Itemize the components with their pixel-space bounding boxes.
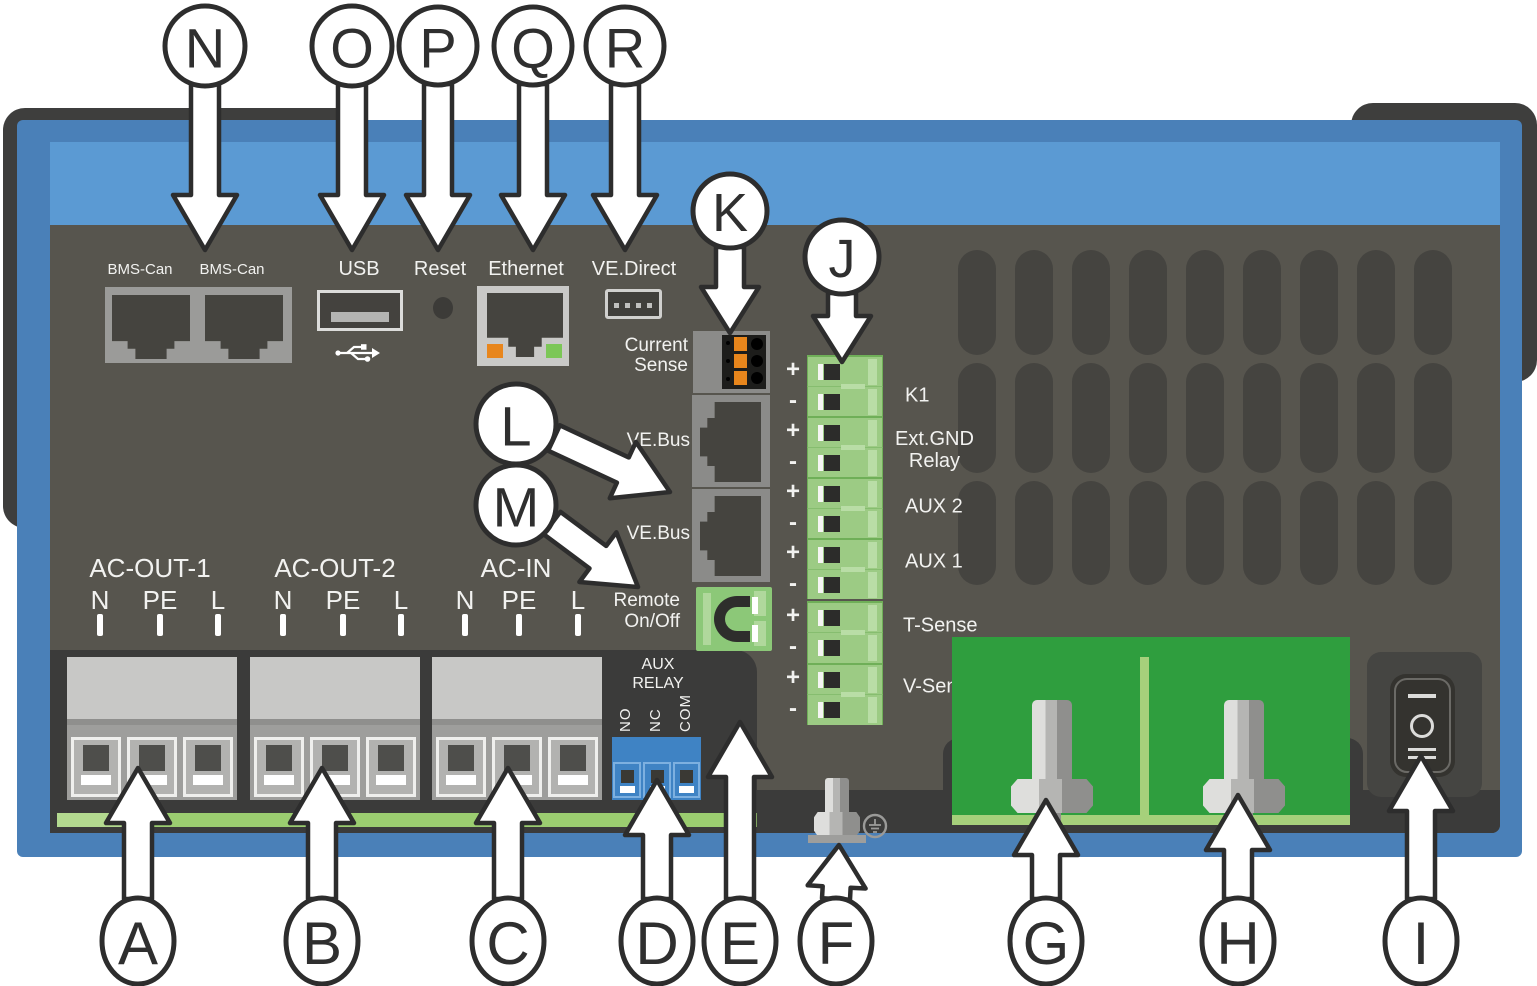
decor — [868, 572, 877, 598]
vent-slot-r2c9 — [1414, 363, 1452, 473]
pcb-divider — [1140, 657, 1149, 825]
pin-tick — [575, 614, 581, 636]
label-t-sense: T-Sense — [903, 615, 977, 638]
ac-terminal-screw — [127, 737, 177, 797]
ground-bolt-nut — [814, 812, 860, 836]
vent-slot-r2c3 — [1072, 363, 1110, 473]
decor — [824, 394, 840, 410]
vent-slot-r1c2 — [1015, 250, 1053, 355]
ethernet-led-orange — [487, 344, 503, 358]
battery-bolt-minus-stub — [1235, 813, 1253, 825]
callout-circle-O — [312, 6, 392, 86]
ac-terminal-screw — [492, 737, 542, 797]
callout-letter-D: D — [635, 910, 678, 977]
vent-slot-r2c2 — [1015, 363, 1053, 473]
vent-slot-r1c8 — [1357, 250, 1395, 355]
vedirect-port — [605, 289, 662, 319]
pin-tick — [398, 614, 404, 636]
decor — [824, 640, 840, 656]
ac-pin-AC-IN-L: L — [571, 585, 585, 616]
pin-tick — [215, 614, 221, 636]
ac-terminal-screw — [548, 737, 598, 797]
sign-minus: - — [783, 635, 803, 659]
j-terminal-cell — [807, 538, 883, 569]
sign-plus: + — [783, 604, 803, 628]
callout-circle-I — [1385, 898, 1457, 984]
vent-slot-r1c4 — [1129, 250, 1167, 355]
connection-diagram: BMS-Can BMS-Can USB Reset Ethernet VE.Di… — [0, 0, 1537, 986]
decor — [868, 542, 877, 568]
decor — [446, 775, 476, 785]
decor — [818, 394, 823, 410]
j-terminal-cell — [807, 663, 883, 694]
ac-terminal-block-AC-OUT-1 — [67, 657, 237, 800]
decor — [432, 719, 602, 725]
callout-circle-F — [800, 898, 872, 984]
ac-terminal-screw — [71, 737, 121, 797]
label-k1: K1 — [905, 385, 929, 408]
j-terminal-cell — [807, 447, 883, 478]
decor — [868, 667, 877, 693]
ac-pin-AC-IN-N: N — [456, 585, 475, 616]
ground-bolt-base — [808, 835, 866, 843]
sign-plus: + — [783, 419, 803, 443]
callout-circle-D — [621, 898, 693, 984]
vent-slot-r2c7 — [1300, 363, 1338, 473]
j-terminal-cell — [807, 694, 883, 725]
decor — [868, 450, 877, 476]
pin-tick — [280, 614, 286, 636]
decor — [824, 486, 840, 502]
power-switch — [1390, 674, 1455, 777]
callout-letter-H: H — [1216, 910, 1259, 977]
vent-slot-r2c4 — [1129, 363, 1167, 473]
j-terminal-cell — [807, 416, 883, 447]
decor — [818, 425, 823, 441]
decor — [818, 516, 823, 532]
vent-slot-r1c6 — [1243, 250, 1281, 355]
decor — [824, 516, 840, 532]
callout-letter-G: G — [1023, 910, 1070, 977]
battery-bolt-minus-shaft — [1224, 700, 1264, 792]
ethernet-label: Ethernet — [488, 258, 564, 281]
battery-bolt-minus-nut — [1203, 779, 1285, 813]
ac-in-label: AC-IN — [481, 553, 552, 584]
callout-circle-A — [102, 898, 174, 984]
vent-slot-r3c6 — [1243, 481, 1281, 585]
decor — [322, 745, 348, 771]
vebus-2-label: VE.Bus — [627, 523, 690, 545]
ac-terminal-screw — [310, 737, 360, 797]
callout-letter-P: P — [419, 17, 456, 80]
pin-tick — [157, 614, 163, 636]
decor — [841, 384, 865, 389]
j-terminal-cell — [807, 601, 883, 632]
ac-pin-AC-IN-PE: PE — [502, 585, 537, 616]
callout-circle-R — [586, 7, 664, 85]
decor — [824, 577, 840, 593]
callout-circle-B — [286, 898, 358, 984]
callout-letter-C: C — [486, 910, 529, 977]
ethernet-led-green — [546, 344, 562, 358]
switch-mark-charger2 — [1408, 756, 1436, 759]
decor — [818, 640, 823, 656]
ac-terminal-screw — [436, 737, 486, 797]
decor — [824, 364, 840, 380]
current-sense-label: Current Sense — [625, 336, 688, 376]
label-ext-gnd-relay: Ext.GND Relay — [895, 428, 974, 472]
callout-letter-B: B — [302, 910, 342, 977]
callout-letter-Q: Q — [511, 17, 555, 80]
callout-circle-E — [704, 898, 776, 984]
decor — [818, 547, 823, 563]
ac-pin-AC-OUT-2-N: N — [274, 585, 293, 616]
decor — [818, 486, 823, 502]
decor — [818, 702, 823, 718]
decor — [502, 775, 532, 785]
vebus-1-label: VE.Bus — [627, 430, 690, 452]
decor — [376, 775, 406, 785]
usb-label: USB — [338, 258, 379, 281]
callout-letter-F: F — [818, 910, 855, 977]
decor — [67, 657, 237, 719]
decor — [195, 745, 221, 771]
decor — [818, 364, 823, 380]
decor — [868, 359, 877, 385]
callout-letter-A: A — [118, 910, 158, 977]
vent-slot-r1c3 — [1072, 250, 1110, 355]
ac-out-1-label: AC-OUT-1 — [89, 553, 210, 584]
j-terminal-cell — [807, 569, 883, 600]
ac-terminal-block-AC-IN — [432, 657, 602, 800]
decor — [139, 745, 165, 771]
callout-circle-P — [399, 7, 477, 85]
decor — [868, 481, 877, 507]
callout-letter-O: O — [330, 17, 374, 80]
ac-terminal-screw — [366, 737, 416, 797]
vent-slot-r3c5 — [1186, 481, 1224, 585]
decor — [266, 745, 292, 771]
callout-circle-N — [165, 6, 245, 86]
bms-can-2-label: BMS-Can — [199, 261, 264, 278]
callout-circle-H — [1202, 898, 1274, 984]
decor — [824, 610, 840, 626]
aux-relay-pin-no: NO — [617, 652, 635, 732]
battery-bolt-plus-nut — [1011, 779, 1093, 813]
decor — [868, 420, 877, 446]
sign-minus: - — [783, 572, 803, 596]
vent-slot-r3c3 — [1072, 481, 1110, 585]
decor — [560, 745, 586, 771]
pcb-bottom-strip — [952, 815, 1350, 825]
sign-minus: - — [783, 697, 803, 721]
vent-slot-r3c7 — [1300, 481, 1338, 585]
callout-circle-Q — [494, 7, 572, 85]
decor — [448, 745, 474, 771]
decor — [83, 745, 109, 771]
decor — [868, 697, 877, 723]
j-terminal-cell — [807, 632, 883, 663]
decor — [818, 672, 823, 688]
decor — [841, 445, 865, 450]
usb-port-tongue — [331, 312, 389, 322]
vedirect-label: VE.Direct — [592, 258, 676, 281]
remote-wire-loop — [714, 596, 750, 642]
pcb-edge-strip — [57, 813, 757, 827]
remote-onoff-connector — [696, 587, 772, 651]
callout-circle-G — [1010, 898, 1082, 984]
decor — [868, 605, 877, 631]
pin-tick — [340, 614, 346, 636]
bms-can-1-label: BMS-Can — [107, 261, 172, 278]
aux-relay-pin-nc: NC — [647, 652, 665, 732]
pin-tick — [516, 614, 522, 636]
sign-plus: + — [783, 480, 803, 504]
reset-label: Reset — [414, 258, 466, 281]
decor — [841, 630, 865, 635]
decor — [193, 775, 223, 785]
sign-plus: + — [783, 541, 803, 565]
decor — [67, 719, 237, 725]
j-terminal-cell — [807, 355, 883, 386]
callout-F: F — [800, 845, 872, 984]
aux-relay-block — [612, 737, 701, 800]
decor — [818, 577, 823, 593]
vent-slot-r3c8 — [1357, 481, 1395, 585]
decor — [824, 425, 840, 441]
sign-plus: + — [783, 358, 803, 382]
ac-pin-AC-OUT-1-PE: PE — [143, 585, 178, 616]
label-aux1: AUX 1 — [905, 551, 963, 574]
callout-letter-N: N — [185, 17, 225, 80]
switch-mark-off — [1410, 714, 1434, 738]
vent-slot-r2c5 — [1186, 363, 1224, 473]
switch-mark-on — [1408, 694, 1436, 698]
switch-mark-charger — [1408, 748, 1436, 751]
aux-relay-pin-com: COM — [677, 652, 695, 732]
decor — [264, 775, 294, 785]
decor — [818, 455, 823, 471]
j-terminal-cell — [807, 477, 883, 508]
reset-button — [433, 297, 453, 319]
decor — [868, 635, 877, 661]
sign-minus: - — [783, 450, 803, 474]
ac-pin-AC-OUT-2-L: L — [394, 585, 408, 616]
j-terminal-cell — [807, 386, 883, 417]
vent-slot-r1c1 — [958, 250, 996, 355]
vent-slot-r2c8 — [1357, 363, 1395, 473]
decor — [841, 506, 865, 511]
decor — [250, 657, 420, 719]
ac-pin-AC-OUT-1-N: N — [91, 585, 110, 616]
ac-pin-AC-OUT-2-PE: PE — [326, 585, 361, 616]
decor — [320, 775, 350, 785]
decor — [824, 455, 840, 471]
sign-minus: - — [783, 511, 803, 535]
pin-tick — [97, 614, 103, 636]
battery-bolt-plus-stub — [1043, 813, 1061, 825]
vent-slot-r1c5 — [1186, 250, 1224, 355]
ac-out-2-label: AC-OUT-2 — [274, 553, 395, 584]
vent-slot-r3c9 — [1414, 481, 1452, 585]
vent-slot-r1c9 — [1414, 250, 1452, 355]
ac-terminal-screw — [183, 737, 233, 797]
ac-pin-AC-OUT-1-L: L — [211, 585, 225, 616]
j-terminal-cell — [807, 508, 883, 539]
decor — [824, 672, 840, 688]
decor — [81, 775, 111, 785]
decor — [824, 702, 840, 718]
callout-letter-R: R — [605, 17, 645, 80]
current-sense-connector — [722, 335, 766, 389]
decor — [841, 567, 865, 572]
decor — [868, 511, 877, 537]
decor — [818, 610, 823, 626]
sign-minus: - — [783, 389, 803, 413]
case-blue-band — [50, 142, 1500, 225]
callout-circle-C — [472, 898, 544, 984]
decor — [841, 692, 865, 697]
decor — [432, 657, 602, 719]
pin-tick — [462, 614, 468, 636]
label-aux2: AUX 2 — [905, 496, 963, 519]
decor — [504, 745, 530, 771]
vent-slot-r3c2 — [1015, 481, 1053, 585]
vent-slot-r1c7 — [1300, 250, 1338, 355]
sign-plus: + — [783, 666, 803, 690]
decor — [137, 775, 167, 785]
ac-terminal-block-AC-OUT-2 — [250, 657, 420, 800]
vent-slot-r3c1 — [958, 481, 996, 585]
vent-slot-r2c6 — [1243, 363, 1281, 473]
callout-letter-I: I — [1413, 910, 1430, 977]
decor — [824, 547, 840, 563]
callout-letter-E: E — [720, 910, 760, 977]
decor — [868, 389, 877, 415]
vent-slot-r3c4 — [1129, 481, 1167, 585]
ground-bolt-shaft — [825, 778, 849, 816]
decor — [558, 775, 588, 785]
decor — [250, 719, 420, 725]
usb-port — [317, 290, 403, 331]
remote-onoff-label: Remote On/Off — [613, 590, 680, 632]
decor — [378, 745, 404, 771]
ac-terminal-screw — [254, 737, 304, 797]
battery-bolt-plus-shaft — [1032, 700, 1072, 792]
